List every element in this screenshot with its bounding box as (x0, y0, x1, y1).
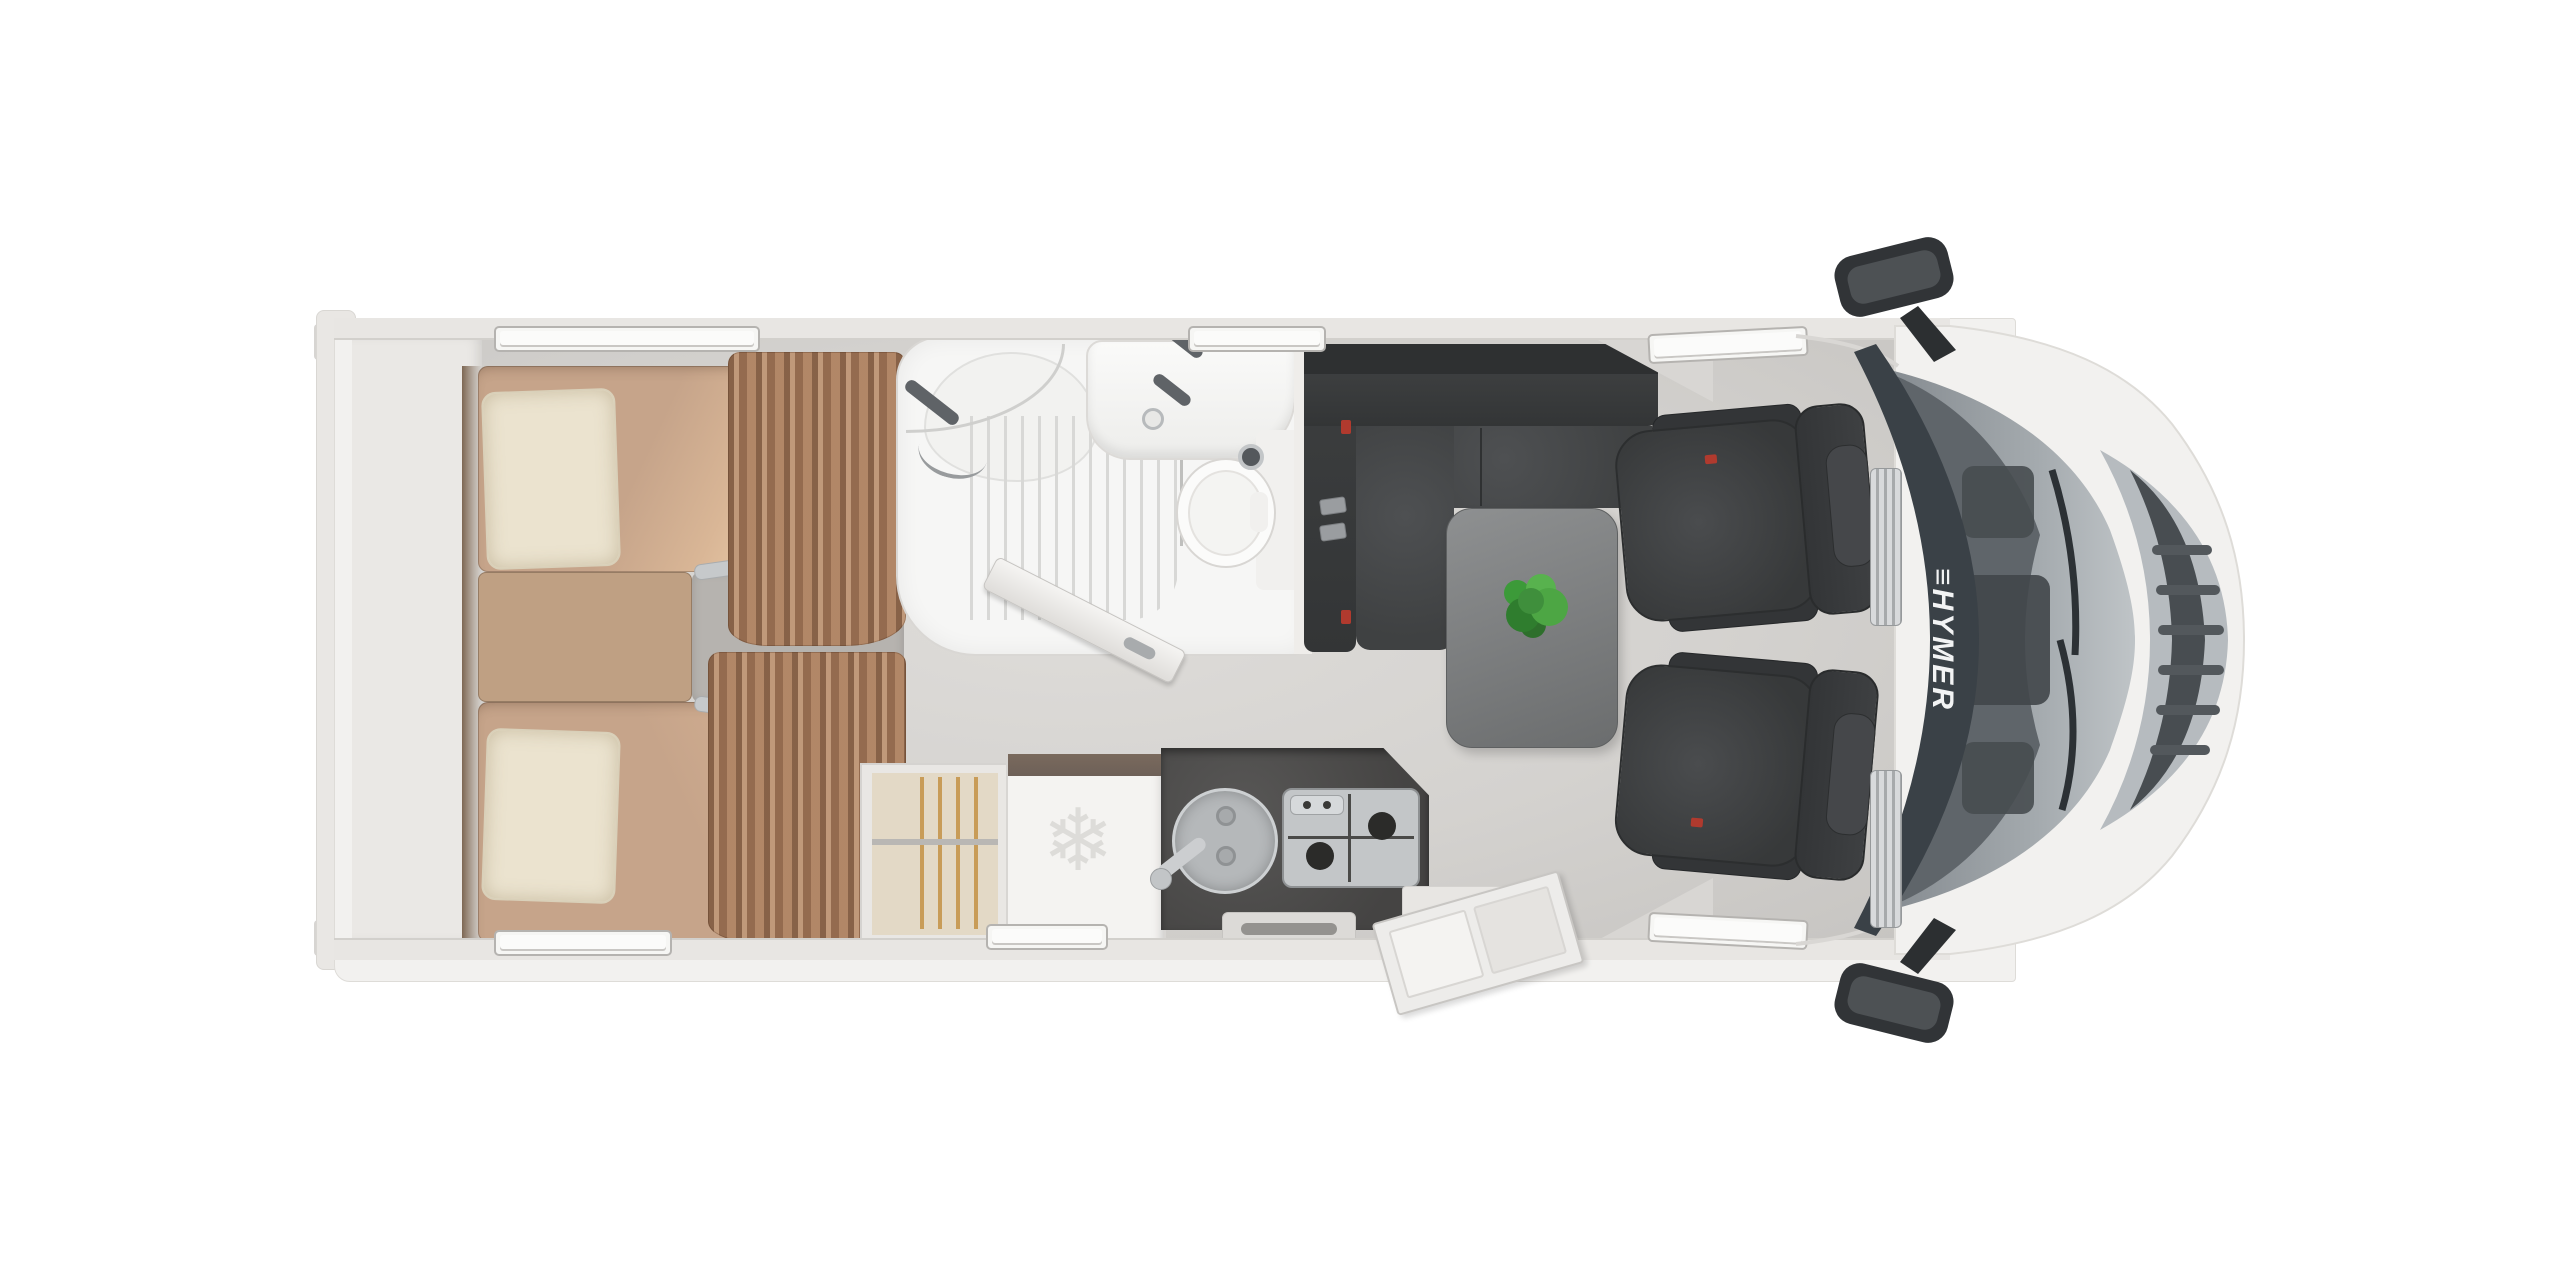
refrigerator: ❄ (1006, 752, 1166, 948)
window-glass (500, 331, 754, 347)
curtain-top-bed (728, 352, 906, 646)
sofa-seat-left (1356, 426, 1454, 650)
window-bed-top (494, 326, 760, 352)
motorhome-floorplan: ❄ (0, 0, 2560, 1280)
kitchen-sink (1172, 788, 1278, 894)
window-glass (500, 935, 666, 951)
cab-step-top (1870, 468, 1902, 626)
hymer-logo-text: ≡HYMER (1926, 568, 1959, 712)
entry-door-panel (1473, 886, 1567, 975)
pillow-bottom-bed (481, 728, 621, 905)
snowflake-icon: ❄ (1042, 798, 1132, 908)
cab-front-graphic: ≡HYMER (1560, 230, 2260, 1050)
wardrobe-rail (872, 839, 998, 845)
seatbelt-anchor-top (1341, 420, 1351, 434)
wardrobe (860, 763, 1010, 947)
bed-middle-cushion (478, 572, 692, 702)
cab-step-bottom (1870, 770, 1902, 928)
burner-right (1368, 812, 1396, 840)
grille-slat (2158, 665, 2224, 675)
stove-grate-horizontal (1288, 836, 1414, 839)
stove-knob-2 (1323, 801, 1331, 809)
grille-slat (2156, 585, 2220, 595)
burner-left (1306, 842, 1334, 870)
window-kitchen (986, 924, 1108, 950)
plant (1518, 588, 1544, 614)
window-glass (1194, 331, 1320, 347)
kitchen-faucet-base (1150, 868, 1172, 890)
pillow-top-bed (481, 388, 621, 571)
stove-control-panel (1290, 795, 1344, 815)
grille-slat (2152, 545, 2212, 555)
stove-knob-1 (1303, 801, 1311, 809)
entry-door-window (1388, 909, 1484, 998)
sofa-seam (1480, 428, 1482, 506)
bathroom-vent (1238, 444, 1264, 470)
window-bed-bottom (494, 930, 672, 956)
wardrobe-hangers (920, 777, 992, 929)
grille-slat (2158, 625, 2224, 635)
grille-slat (2156, 705, 2220, 715)
engine-part-top (1962, 466, 2034, 538)
bathroom-door-handle (1122, 635, 1158, 661)
window-bathroom (1188, 326, 1326, 352)
engine-part-bottom (1962, 742, 2034, 814)
sink-plug-hole (1216, 846, 1236, 866)
wall-bottom-left (334, 938, 1390, 960)
seatbelt-anchor-bottom (1341, 610, 1351, 624)
sink-drain-hole (1216, 806, 1236, 826)
window-glass (992, 929, 1102, 945)
grille-slat (2150, 745, 2210, 755)
refrigerator-lid (1008, 754, 1164, 776)
washbasin-drain (1142, 408, 1164, 430)
entry-step-slot (1241, 923, 1337, 935)
stove (1282, 788, 1420, 888)
toilet-hinge (1250, 492, 1268, 532)
